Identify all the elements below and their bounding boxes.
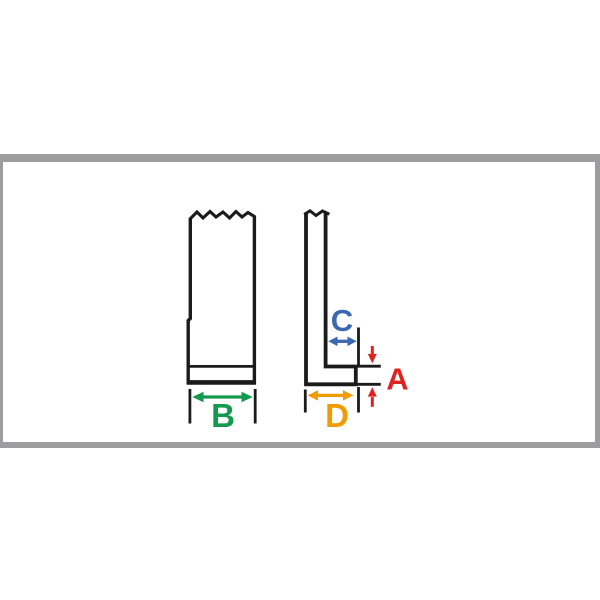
- diagram-ink: B C A D: [187, 211, 409, 434]
- dimension-a-label: A: [386, 362, 408, 397]
- dimension-b-arrowhead-right-icon: [242, 392, 253, 403]
- dimension-b: B: [192, 392, 252, 434]
- side-view-outline: [306, 213, 356, 385]
- dimension-c: C: [328, 303, 356, 346]
- dimension-b-label: B: [211, 397, 235, 434]
- front-view-break-line: [190, 212, 255, 220]
- dimension-d: D: [308, 390, 354, 434]
- screenshot-root: B C A D: [0, 0, 600, 600]
- dimension-d-label: D: [325, 397, 349, 434]
- side-view: [304, 211, 356, 384]
- dimension-a-arrowhead-down-icon: [368, 354, 377, 364]
- dimension-d-arrowhead-left-icon: [308, 390, 318, 400]
- dimension-a-arrowhead-up-icon: [368, 387, 377, 397]
- dimension-c-label: C: [331, 303, 353, 338]
- front-view-left-edge: [188, 218, 190, 384]
- front-view: [187, 212, 256, 385]
- dimension-b-arrowhead-left-icon: [192, 392, 203, 403]
- dimension-a: A: [368, 346, 409, 407]
- bracket-dimension-diagram: B C A D: [0, 0, 600, 600]
